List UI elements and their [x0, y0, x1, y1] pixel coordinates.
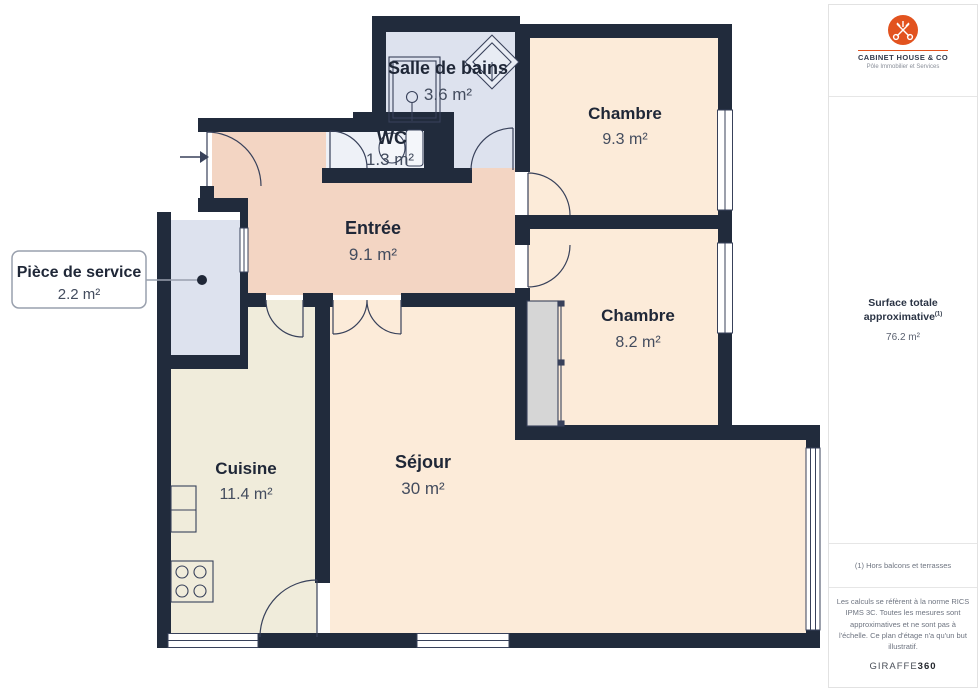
giraffe360-watermark: GIRAFFE360 [836, 661, 970, 672]
surface-section: Surface totale approximative(1) 76.2 m² [829, 97, 977, 543]
bedroom2-label: Chambre [601, 306, 675, 325]
service-room-label: Pièce de service [17, 264, 142, 281]
bedroom1-label: Chambre [588, 104, 662, 123]
watermark-regular: GIRAFFE [869, 661, 917, 672]
brand-tagline: Pôle Immobilier et Services [867, 64, 940, 70]
room-entry-nook [472, 168, 515, 183]
disclaimer-text: Les calculs se réfèrent à la norme RICS … [836, 596, 970, 652]
service-room-area: 2.2 m² [58, 286, 101, 303]
surface-label-sup: (1) [935, 311, 942, 317]
footnote: (1) Hors balcons et terrasses [829, 543, 977, 587]
brand-block: CABINET HOUSE & CO Pôle Immobilier et Se… [829, 5, 977, 97]
room-service [171, 220, 240, 357]
window-bedroom1 [718, 110, 733, 210]
bedroom2-area: 8.2 m² [615, 334, 661, 351]
living-label: Séjour [395, 452, 451, 472]
brand-name: CABINET HOUSE & CO [858, 50, 948, 62]
info-sidebar: CABINET HOUSE & CO Pôle Immobilier et Se… [828, 4, 978, 688]
entry-area: 9.1 m² [349, 245, 398, 264]
surface-value: 76.2 m² [886, 332, 920, 343]
brand-logo-keys-icon [886, 13, 920, 47]
kitchen-area: 11.4 m² [219, 486, 273, 503]
room-bedroom1 [528, 36, 719, 217]
bath-area: 3.6 m² [424, 85, 473, 104]
window-living-glass-door [806, 448, 820, 630]
window-bedroom2 [718, 243, 733, 333]
window-living-bottom [417, 634, 509, 648]
disclaimer-block: Les calculs se réfèrent à la norme RICS … [829, 587, 977, 687]
bath-label: Salle de bains [388, 58, 508, 78]
entry-label: Entrée [345, 218, 401, 238]
window-kitchen-bottom [168, 634, 258, 648]
sliding-door-service [240, 228, 248, 272]
living-area: 30 m² [401, 479, 445, 498]
bedroom1-area: 9.3 m² [602, 131, 648, 148]
wc-label: WC [377, 128, 407, 148]
entrance-arrow-icon [180, 151, 209, 163]
callout-anchor-dot [197, 275, 207, 285]
floor-plan-page: Pièce de service 2.2 m² Salle de bains 3… [0, 0, 980, 692]
surface-label-text: Surface totale approximative [864, 297, 938, 323]
kitchen-label: Cuisine [215, 459, 276, 478]
watermark-bold: 360 [918, 661, 937, 672]
closet-icon [527, 301, 564, 426]
wc-area: 1.3 m² [366, 150, 415, 169]
surface-label: Surface totale approximative(1) [837, 297, 969, 324]
